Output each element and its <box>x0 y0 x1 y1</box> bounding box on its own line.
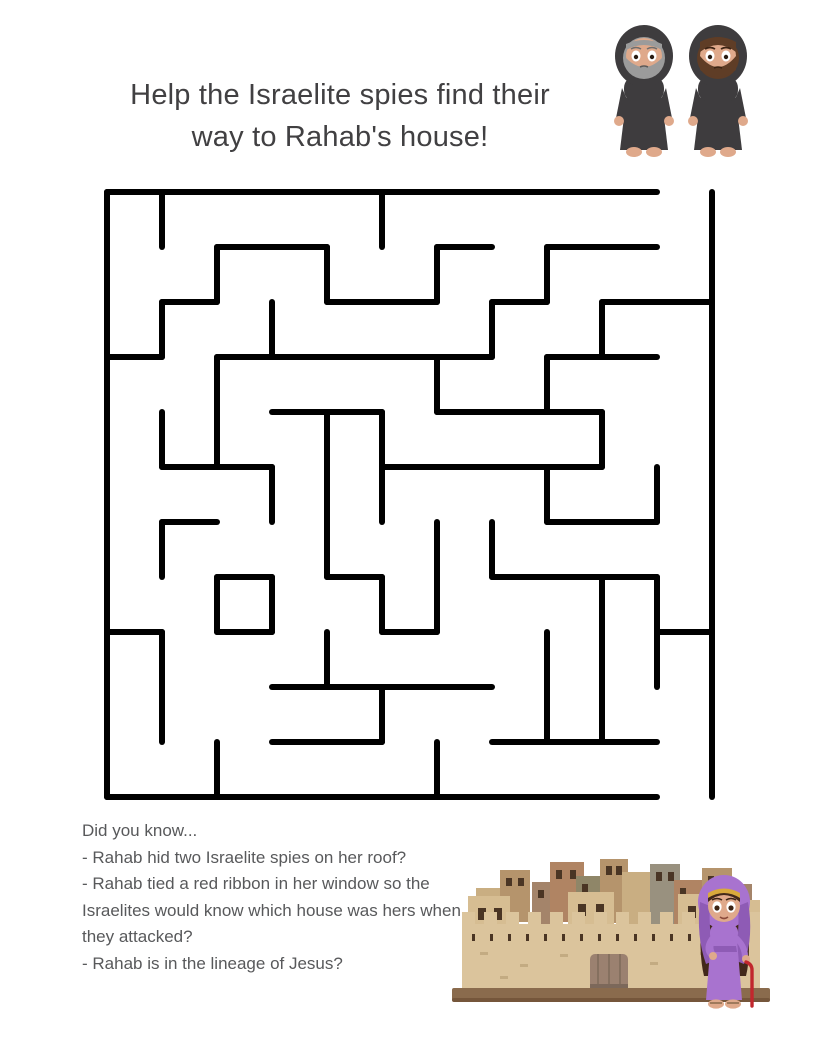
fact-item: - Rahab tied a red ribbon in her window … <box>82 871 486 951</box>
fact-item: - Rahab is in the lineage of Jesus? <box>82 951 486 978</box>
city-gate-icon <box>590 954 628 990</box>
facts-heading: Did you know... <box>82 818 486 845</box>
rahab-icon <box>686 872 766 1014</box>
did-you-know-section: Did you know... - Rahab hid two Israelit… <box>82 818 486 977</box>
worksheet-page: Help the Israelite spies find their way … <box>0 0 816 1056</box>
fact-item: - Rahab hid two Israelite spies on her r… <box>82 845 486 872</box>
rahab-illustration <box>686 872 766 1014</box>
